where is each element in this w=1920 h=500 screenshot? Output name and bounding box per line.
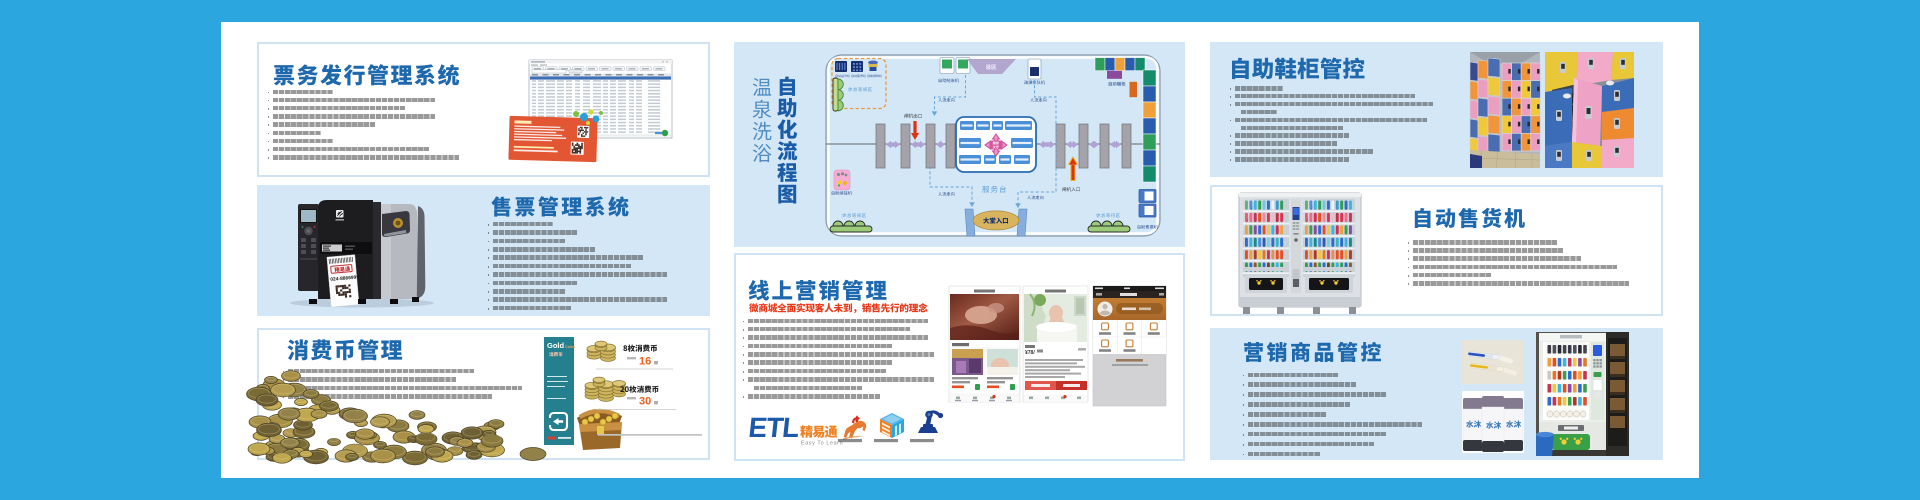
svg-text:30: 30 <box>639 396 651 408</box>
svg-text:Easy To Learn: Easy To Learn <box>801 441 843 447</box>
svg-text:ETL: ETL <box>747 412 801 443</box>
svg-text:16: 16 <box>639 356 651 368</box>
svg-text:¥78/: ¥78/ <box>1025 350 1035 356</box>
